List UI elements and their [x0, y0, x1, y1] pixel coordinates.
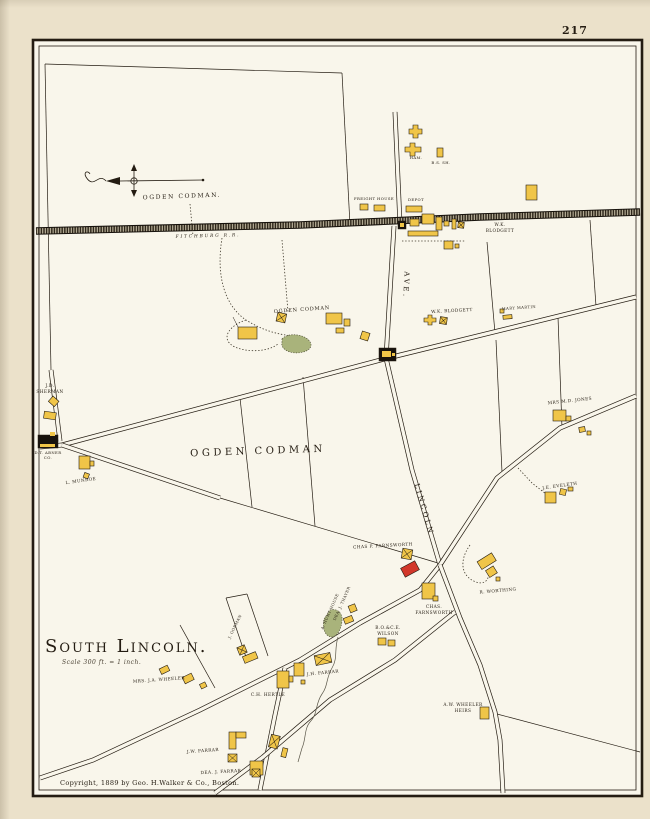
- owner-label-jd-sherman: J.D.: [44, 384, 54, 389]
- building: [496, 577, 500, 581]
- building: [400, 223, 404, 227]
- owner-label-aw-wheeler: HEIRS: [455, 709, 472, 714]
- building: [437, 148, 443, 157]
- building: [44, 411, 57, 420]
- map-frame-outer: [33, 40, 642, 796]
- map-canvas: 217: [0, 0, 650, 819]
- compass-east-dot: [202, 179, 205, 182]
- owner-label-wk-blodgett-station: BLODGETT: [486, 229, 515, 234]
- blacksmith-shop-label: B.S. SH.: [431, 160, 450, 165]
- building-x: [252, 769, 260, 777]
- store-building-black: [379, 348, 396, 361]
- building: [444, 241, 453, 249]
- owner-label-chas-farnsworth: FARNSWORTH: [415, 611, 452, 616]
- copyright-line: Copyright, 1889 by Geo. H.Walker & Co., …: [60, 779, 239, 787]
- map-scale-note: Scale 300 ft. = 1 inch.: [62, 659, 141, 666]
- depot-building: [406, 206, 422, 212]
- building: [336, 328, 344, 333]
- building-x: [439, 317, 447, 325]
- building: [545, 492, 556, 503]
- owner-label-abner: CO.: [44, 455, 52, 460]
- freight-house-label: FREIGHT HOUSE: [354, 196, 394, 201]
- building: [344, 319, 350, 326]
- building: [566, 416, 571, 421]
- building: [410, 219, 419, 226]
- building: [444, 221, 449, 226]
- building: [289, 676, 293, 682]
- building: [526, 185, 537, 200]
- owner-label-wilson: WILSON: [377, 632, 399, 637]
- building: [90, 461, 94, 466]
- owner-label-aw-wheeler: A.W. WHEELER: [442, 703, 483, 708]
- building: [294, 663, 304, 676]
- owner-label-wilson: B.O.&C.E.: [375, 626, 401, 631]
- freight-house-building: [374, 205, 385, 211]
- building: [301, 680, 305, 684]
- building: [436, 217, 442, 230]
- building: [229, 732, 236, 749]
- street-label-ave: AVE.: [401, 270, 410, 299]
- owner-label-ch-hertle: C.H. HERTLE: [251, 693, 285, 698]
- building: [79, 456, 90, 469]
- building: [378, 638, 386, 645]
- owner-label-wk-blodgett-station: W.K.: [494, 223, 505, 228]
- building: [236, 732, 246, 738]
- building: [277, 671, 289, 688]
- building: [422, 214, 434, 224]
- page-number: 217: [562, 24, 588, 37]
- freight-house-building: [360, 204, 368, 210]
- building: [455, 244, 459, 248]
- owner-label-jd-sherman: SHERMAN: [36, 390, 63, 395]
- building: [559, 488, 566, 495]
- building: [587, 431, 591, 435]
- building-x: [458, 222, 465, 229]
- building-x: [228, 754, 237, 762]
- building: [579, 427, 586, 433]
- ham-label: HAM.: [410, 155, 423, 160]
- building-x: [401, 548, 413, 560]
- owner-label-chas-farnsworth: CHAS.: [426, 605, 442, 610]
- building: [238, 327, 257, 339]
- atlas-page: 217: [0, 0, 650, 819]
- depot-label: DEPOT: [408, 197, 424, 202]
- building: [553, 410, 566, 421]
- building: [503, 315, 512, 320]
- building: [480, 707, 489, 719]
- building: [326, 313, 342, 324]
- building: [388, 640, 395, 646]
- building: [452, 219, 456, 229]
- map-title: South Lincoln.: [45, 636, 207, 657]
- building: [433, 596, 438, 601]
- building: [408, 231, 438, 236]
